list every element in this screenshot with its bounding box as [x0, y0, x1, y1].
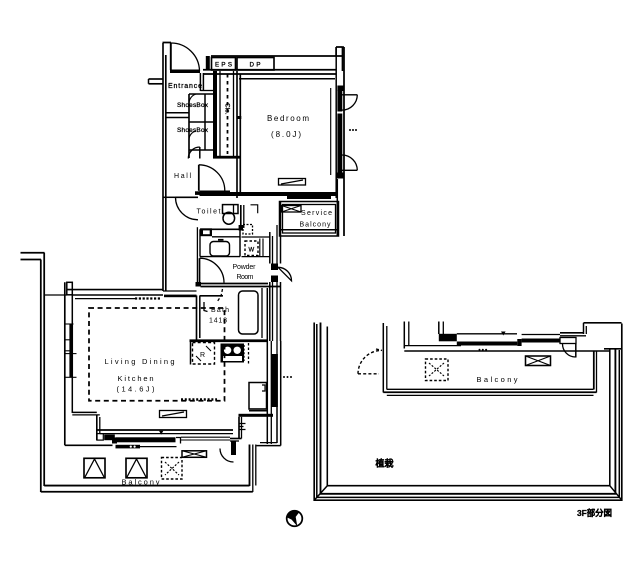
svg-text:Hall: Hall: [174, 173, 191, 180]
svg-text:ShoesBox: ShoesBox: [177, 102, 209, 109]
svg-text:Service: Service: [301, 210, 332, 217]
svg-text:Bedroom: Bedroom: [267, 114, 309, 123]
svg-text:Clo.: Clo.: [224, 103, 231, 115]
svg-text:(14.6J): (14.6J): [117, 385, 156, 394]
svg-text:EPS: EPS: [215, 62, 232, 69]
svg-text:ShoesBox: ShoesBox: [177, 127, 209, 134]
svg-text:Balcony: Balcony: [300, 222, 332, 229]
svg-text:3F部分図: 3F部分図: [577, 508, 612, 518]
svg-text:W: W: [249, 248, 255, 254]
svg-text:Living Dining: Living Dining: [105, 357, 175, 366]
svg-text:Entrance: Entrance: [168, 83, 202, 90]
svg-text:植栽: 植栽: [375, 458, 394, 469]
svg-text:R: R: [200, 352, 205, 359]
svg-text:Powder: Powder: [233, 264, 257, 271]
svg-text:Room: Room: [237, 274, 254, 281]
